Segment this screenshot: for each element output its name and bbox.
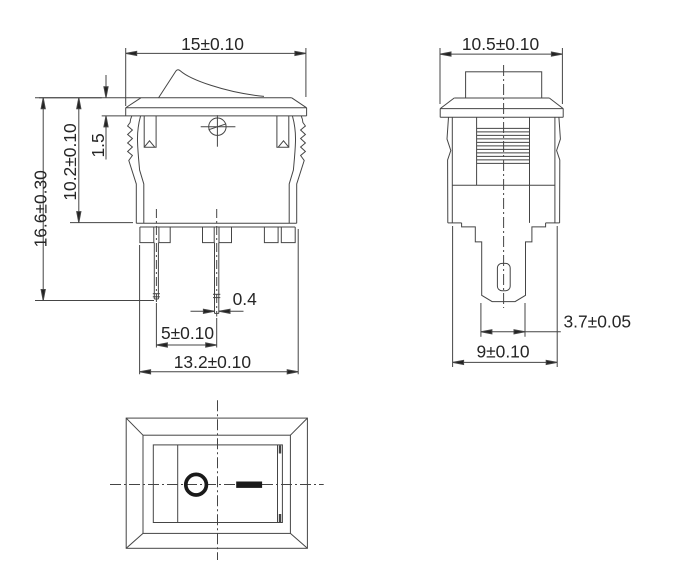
svg-text:10.2±0.10: 10.2±0.10: [60, 123, 80, 200]
svg-text:3.7±0.05: 3.7±0.05: [564, 311, 632, 331]
svg-text:1.5: 1.5: [88, 133, 108, 157]
svg-text:16.6±0.30: 16.6±0.30: [30, 170, 50, 247]
svg-text:0.4: 0.4: [233, 289, 258, 309]
svg-text:13.2±0.10: 13.2±0.10: [174, 352, 251, 372]
svg-text:5±0.10: 5±0.10: [161, 323, 214, 343]
svg-text:9±0.10: 9±0.10: [476, 342, 529, 362]
svg-text:15±0.10: 15±0.10: [181, 34, 244, 54]
svg-text:10.5±0.10: 10.5±0.10: [462, 34, 539, 54]
